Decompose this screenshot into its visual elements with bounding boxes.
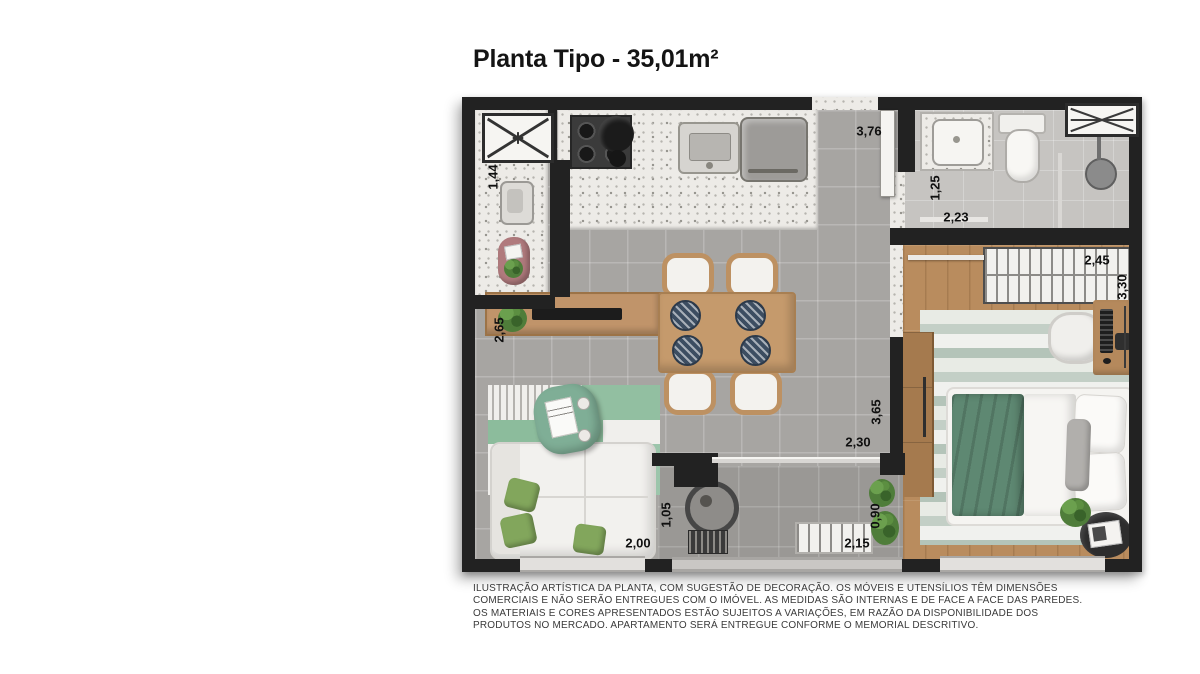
dim-laundry: 1,44 [486,164,501,189]
laundry-sink [500,181,534,225]
bar-cart-card [504,244,523,261]
cup [577,397,590,410]
wall-balcony-pier [880,453,905,475]
balcony-railing [672,557,902,572]
dim-balcony-door: 2,30 [845,435,870,450]
dinner-plate [670,300,701,331]
dim-sofa-depth: 1,05 [659,502,674,527]
sliding-door [712,457,880,463]
wall-bathroom-left [898,110,915,172]
sofa-pillow [572,523,607,556]
dinner-plate [672,335,703,366]
grill-grate [688,530,728,554]
wall-bottom-pier [902,559,940,572]
dim-living-length: 3,65 [869,399,884,424]
bedroom-plant [1060,498,1091,527]
floor-plan: 1,44 3,76 1,25 2,23 2,45 3,30 2,65 3,65 … [462,97,1142,572]
kitchen-sink-basin [689,133,731,161]
grill [685,481,739,535]
dim-balcony-width: 2,15 [844,536,869,551]
wall-left [462,97,475,572]
cup [578,429,591,442]
closet [983,247,1133,304]
dining-chair [664,369,716,415]
tv [532,308,622,320]
cooking-pot [598,116,634,152]
bar-cart-plant [504,259,523,278]
dim-entry-hall: 3,76 [856,124,881,139]
wall-bottom-pier [645,559,672,572]
refrigerator-handle [748,169,798,173]
wall-bottom-segment [462,559,520,572]
dim-balcony-depth: 0,90 [868,503,883,528]
wall-bathroom-bedroom [890,228,1129,245]
wall-bottom-segment [1105,559,1142,572]
bed-blanket [952,394,1024,516]
washing-machine-x-icon [485,116,551,160]
wardrobe [903,332,934,497]
basin-faucet [953,136,960,143]
wall-kitchen-column [550,160,570,297]
grill-knob [700,495,712,507]
bed-lumbar-pillow [1065,419,1091,492]
washing-machine [482,113,554,163]
magazine-photo [1092,526,1107,542]
window-x-icon [1068,106,1136,134]
closet-rail [908,255,984,260]
disclaimer-text: ILUSTRAÇÃO ARTÍSTICA DA PLANTA, COM SUGE… [473,583,1087,633]
mouse [1103,358,1111,364]
wall-bedroom-left [890,337,903,472]
wall-right [1129,97,1142,572]
page-title: Planta Tipo - 35,01m² [473,45,718,74]
refrigerator [740,117,808,182]
living-window [520,556,645,572]
desk-ruler [1124,306,1126,368]
shower-head [1085,158,1117,190]
dinner-plate [735,300,766,331]
shower-partition [1058,153,1062,228]
wall-hall-finish [890,245,903,337]
dinner-plate [740,335,771,366]
dim-bath-length: 2,23 [943,210,968,225]
kitchen-sink [678,122,740,174]
dim-sofa-width: 2,00 [625,536,650,551]
toilet-bowl [1005,129,1040,183]
dim-bedroom: 3,30 [1115,274,1130,299]
dim-bath-width: 1,25 [928,175,943,200]
keyboard [1100,309,1113,353]
closet-divider [985,274,1127,276]
bedroom-window [940,556,1105,572]
wall-top-left [462,97,812,110]
wardrobe-handle [923,377,926,437]
dim-closet: 2,45 [1084,253,1109,268]
small-pot [609,150,626,167]
kitchen-faucet [706,162,713,169]
magazine [1087,520,1122,548]
wall-kitchen-half [475,295,555,309]
entry-door-leaf [880,110,895,197]
laundry-sink-basin [507,189,523,213]
dim-living-width: 2,65 [492,317,507,342]
entry-threshold [812,97,878,110]
bed [946,387,1134,526]
bathroom-vanity [920,112,994,171]
dining-chair [730,369,782,415]
bathroom-window [1065,103,1139,137]
